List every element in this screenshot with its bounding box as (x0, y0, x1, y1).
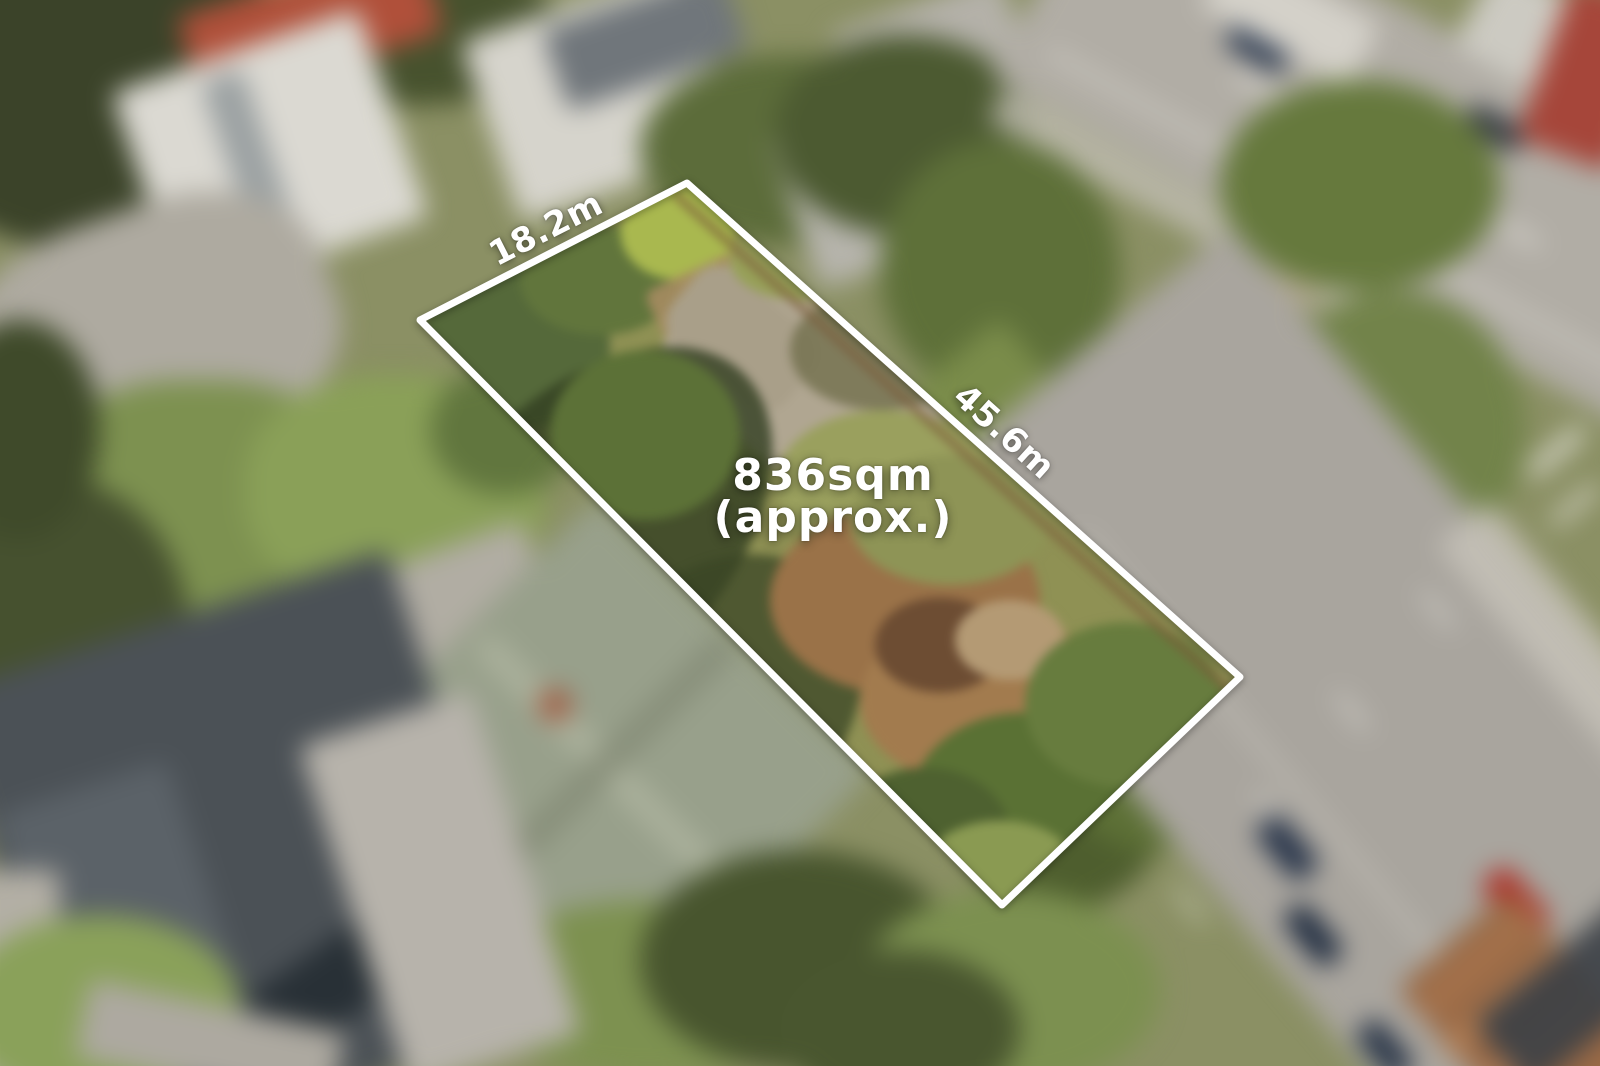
aerial-property-photo: 18.2m 45.6m 836sqm (approx.) (0, 0, 1600, 1066)
area-qualifier: (approx.) (714, 497, 953, 539)
lot-boundary-polygon (420, 183, 1240, 905)
area-value: 836sqm (714, 455, 953, 497)
area-label: 836sqm (approx.) (714, 455, 953, 539)
